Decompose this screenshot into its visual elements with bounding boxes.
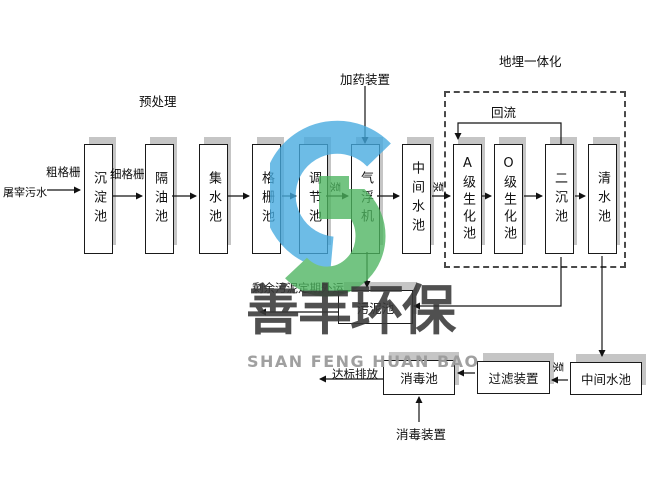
tank-o-level-biochemical: O级生化池 — [494, 144, 523, 254]
tank-secondary-sedimentation: 二沉池 — [545, 144, 574, 254]
tank-a-level-biochemical: A级生化池 — [453, 144, 482, 254]
pretreatment-label: 预处理 — [139, 91, 177, 110]
excess-sludge-label: 剩余污泥定期外运 — [252, 280, 344, 296]
tank-water-collection: 集水池 — [199, 144, 228, 254]
buried-integration-label: 地埋一体化 — [499, 51, 562, 70]
dosing-device-label: 加药装置 — [340, 69, 390, 88]
pump-label-2: 泵 — [431, 182, 447, 193]
tank-grille: 格栅池 — [252, 144, 281, 254]
influent-label: 屠宰污水 — [3, 184, 47, 200]
tank-clear-water: 清水池 — [588, 144, 617, 254]
fine-screen-label: 细格栅 — [110, 166, 145, 182]
discharge-label: 达标排放 — [332, 366, 378, 382]
tank-disinfection: 消毒池 — [383, 360, 455, 395]
tank-sedimentation: 沉淀池 — [84, 144, 113, 254]
pump-label-3: 泵 — [551, 362, 567, 373]
pump-label-1: 泵 — [328, 182, 344, 193]
tank-sludge: 污泥池 — [338, 290, 413, 324]
tank-oil-separation: 隔油池 — [145, 144, 174, 254]
tank-air-flotation: 气浮机 — [351, 144, 380, 254]
disinfection-device-label: 消毒装置 — [396, 424, 446, 443]
reflux-label: 回流 — [491, 102, 516, 121]
tank-regulation: 调节池 — [299, 144, 328, 254]
tank-intermediate-2: 中间水池 — [570, 362, 642, 395]
coarse-screen-label: 粗格栅 — [46, 164, 81, 180]
filter-device-box: 过滤装置 — [477, 361, 550, 394]
process-flow-diagram: 沉淀池 隔油池 集水池 格栅池 调节池 气浮机 中间水池 A级生化池 O级生化池… — [0, 0, 650, 500]
tank-intermediate-water: 中间水池 — [402, 144, 431, 254]
